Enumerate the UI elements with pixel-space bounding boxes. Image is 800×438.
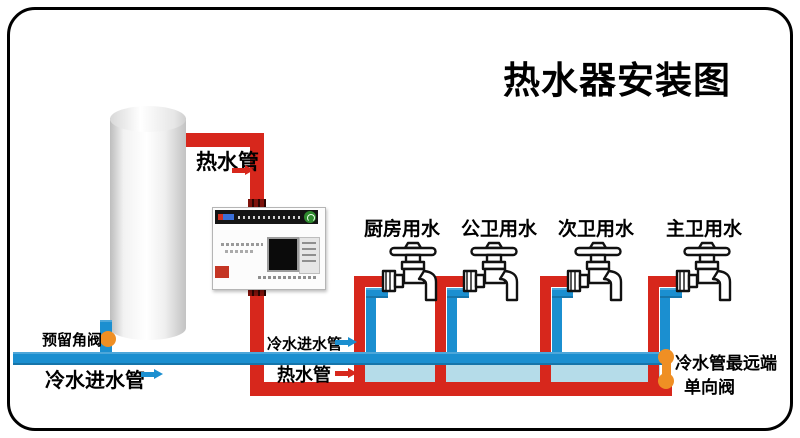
cold-far-end-label: 冷水管最远端: [675, 349, 777, 374]
hot-pipe-riser-4: [648, 276, 659, 393]
reserved-angle-valve-label: 预留角阀: [42, 329, 102, 350]
controller-display: [267, 237, 299, 272]
faucet-label-public-bath: 公卫用水: [461, 214, 537, 241]
faucet-label-second-bath: 次卫用水: [558, 214, 634, 241]
cold-inlet-label-mid: 冷水进水管: [267, 333, 342, 354]
faucet-icon: [566, 240, 630, 306]
water-tank-top: [110, 106, 186, 132]
angle-valve: [100, 331, 116, 347]
controller-header: [215, 210, 318, 224]
hot-pipe-label-mid: 热水管: [277, 361, 331, 387]
cold-flow-arrow-left: [141, 369, 163, 379]
hot-flow-arrow-top: [232, 165, 254, 175]
controller-fine-print: [258, 276, 316, 279]
page-title: 热水器安装图: [503, 50, 731, 104]
hot-pipe-device-outlet: [250, 284, 264, 396]
check-valve-bottom-ball: [658, 373, 674, 389]
controller-label-card: [299, 237, 320, 274]
faucet-icon: [381, 240, 445, 306]
check-valve-label: 单向阀: [684, 373, 735, 398]
diagram-canvas: 热水器安装图 热水管 冷水进水管 预留角阀 冷水进水管 热水管 冷水管最远端 单…: [0, 0, 800, 438]
faucet-label-master-bath: 主卫用水: [666, 214, 742, 241]
cold-return-fill: [356, 365, 660, 382]
hot-pipe-riser-3: [540, 276, 551, 393]
controller-badge: [215, 266, 229, 278]
controller-header-text: [238, 216, 300, 219]
recycle-icon: [304, 211, 316, 223]
hot-flow-arrow-mid: [335, 368, 357, 378]
check-valve-top-ball: [658, 349, 674, 365]
faucet-icon: [462, 240, 526, 306]
cold-flow-arrow-mid: [335, 337, 357, 347]
cold-inlet-label-left: 冷水进水管: [45, 364, 145, 393]
faucet-icon: [675, 240, 739, 306]
controller-brand-logo: [218, 214, 234, 220]
water-tank: [110, 118, 186, 340]
controller-model-text: [221, 243, 263, 257]
faucet-label-kitchen: 厨房用水: [364, 214, 440, 241]
